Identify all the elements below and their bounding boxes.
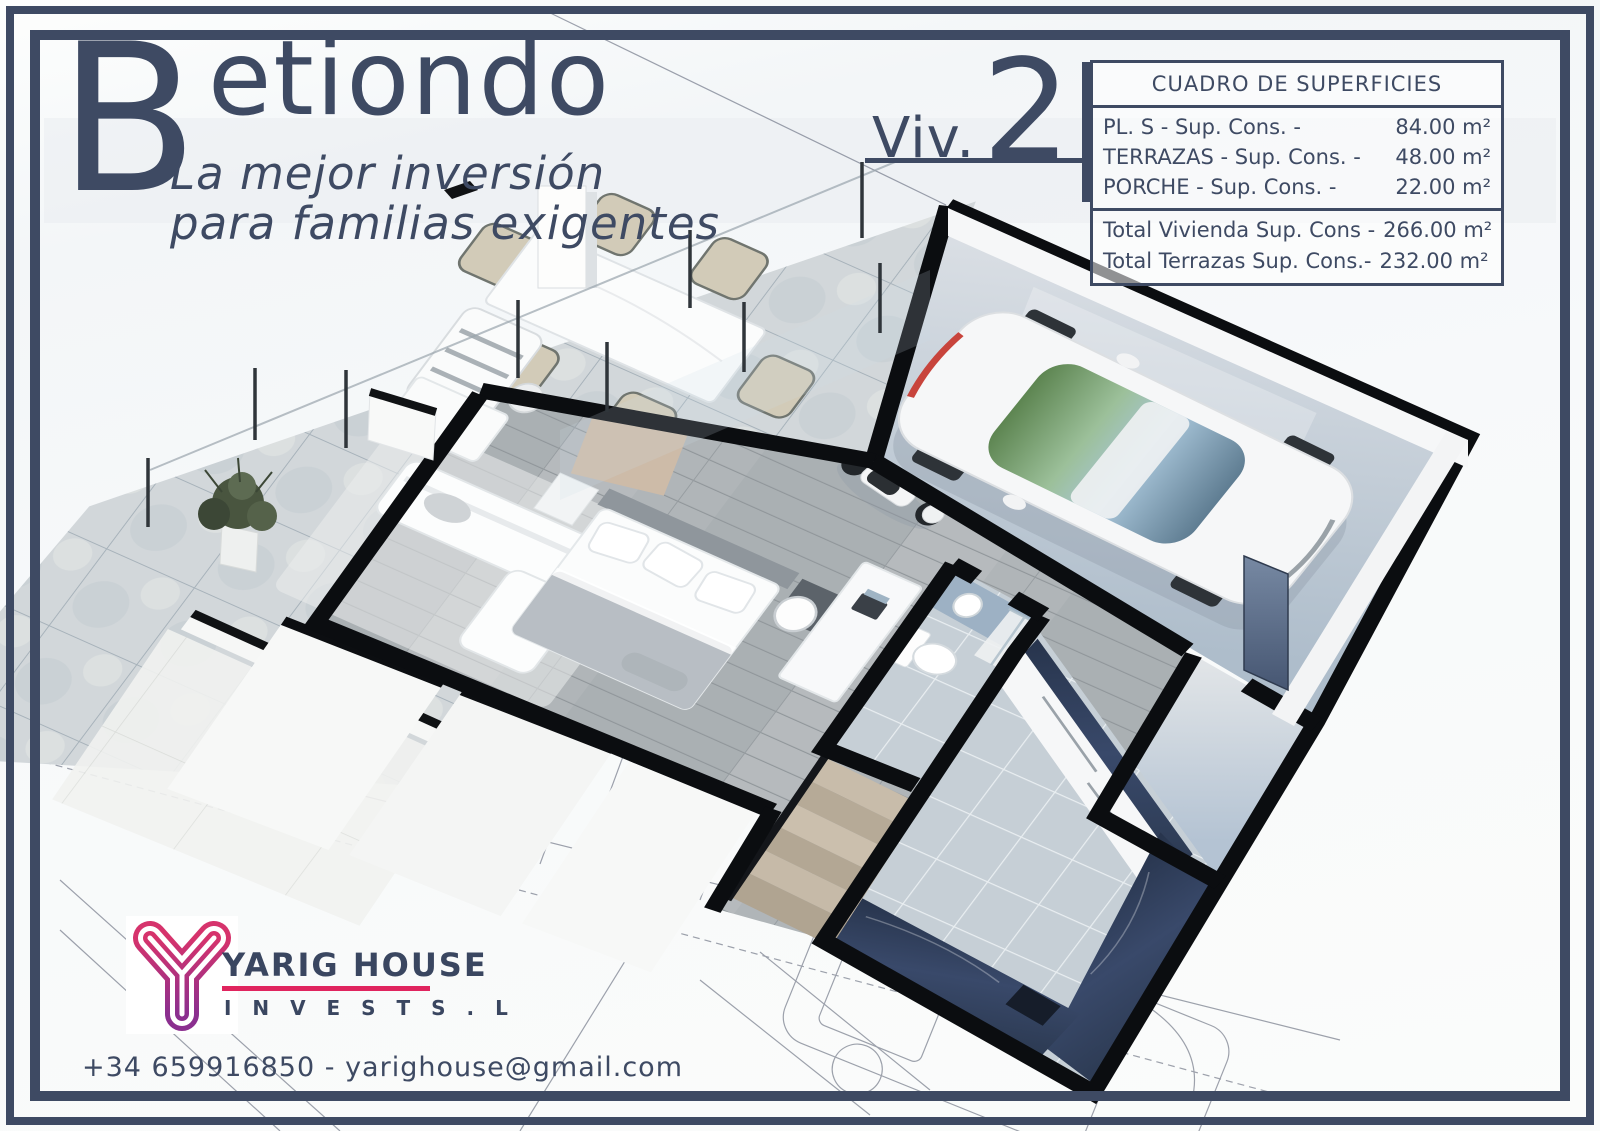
table-total-row: Total Terrazas Sup. Cons.- 232.00 m²	[1103, 246, 1493, 277]
brand-tagline-line1: La mejor inversión	[170, 147, 605, 200]
surfaces-table-title: CUADRO DE SUPERFICIES	[1093, 63, 1501, 108]
row-label: PL. S - Sup. Cons. -	[1103, 112, 1301, 142]
table-row: PL. S - Sup. Cons. - 84.00 m²	[1103, 112, 1491, 142]
table-row: TERRAZAS - Sup. Cons. - 48.00 m²	[1103, 142, 1491, 172]
storage-door	[1244, 556, 1288, 690]
row-value: 48.00 m²	[1395, 142, 1491, 172]
marketing-sheet: B etiondo La mejor inversión para famili…	[0, 0, 1600, 1131]
company-subname: I N V E S T S . L	[224, 996, 515, 1020]
total-label: Total Terrazas Sup. Cons.-	[1103, 246, 1372, 277]
contact-info: +34 659916850 - yarighouse@gmail.com	[82, 1052, 683, 1083]
total-value: 266.00 m²	[1383, 215, 1492, 246]
brand-name: etiondo	[208, 28, 611, 131]
total-value: 232.00 m²	[1380, 246, 1489, 277]
company-name: YARIG HOUSE	[222, 946, 488, 984]
table-row: PORCHE - Sup. Cons. - 22.00 m²	[1103, 172, 1491, 202]
table-divider-bar	[1082, 62, 1090, 202]
company-underline	[222, 986, 430, 991]
unit-underline	[865, 158, 1086, 163]
row-label: PORCHE - Sup. Cons. -	[1103, 172, 1336, 202]
total-label: Total Vivienda Sup. Cons -	[1103, 215, 1375, 246]
row-value: 84.00 m²	[1395, 112, 1491, 142]
brand-tagline-line2: para familias exigentes	[170, 197, 720, 250]
row-value: 22.00 m²	[1395, 172, 1491, 202]
surfaces-table: CUADRO DE SUPERFICIES PL. S - Sup. Cons.…	[1090, 60, 1504, 286]
table-total-row: Total Vivienda Sup. Cons - 266.00 m²	[1103, 215, 1493, 246]
row-label: TERRAZAS - Sup. Cons. -	[1103, 142, 1361, 172]
